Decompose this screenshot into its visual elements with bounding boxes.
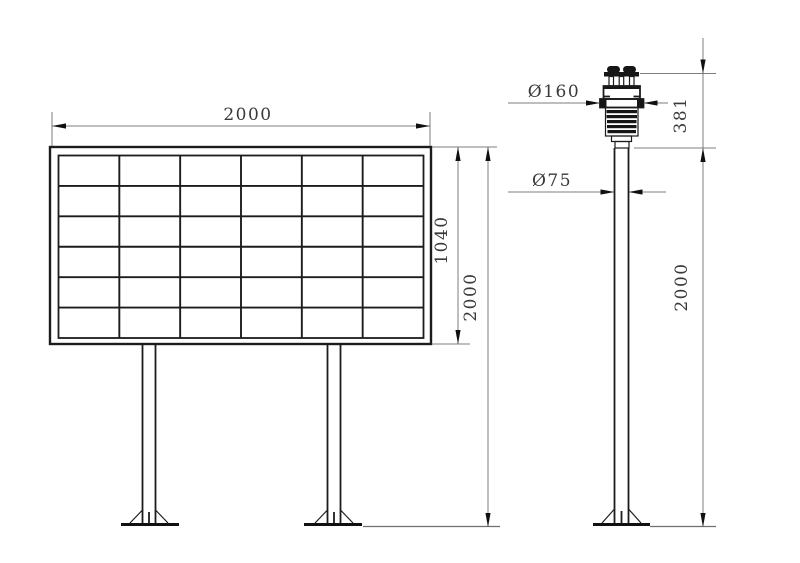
sensor-pole-side-view: Ø160 Ø75 381 2000 bbox=[508, 38, 716, 527]
pole-height-label: 2000 bbox=[672, 262, 692, 311]
sensor-cap-right bbox=[623, 66, 636, 73]
arrow-bottom bbox=[455, 330, 460, 344]
left-gusset-right bbox=[156, 510, 169, 523]
technical-drawing: 2000 1040 2000 bbox=[0, 0, 800, 563]
drawing-sheet: 2000 1040 2000 bbox=[0, 0, 800, 563]
panel-grid-lines bbox=[59, 156, 424, 339]
arrow-top bbox=[455, 147, 460, 161]
pole-gusset-left bbox=[602, 509, 615, 523]
sensor-louver-stack bbox=[606, 108, 639, 137]
pole-diameter-label: Ø75 bbox=[532, 171, 572, 191]
arrow-down-to-ground bbox=[700, 513, 705, 527]
sensor-post bbox=[609, 77, 614, 87]
arrow-left bbox=[629, 189, 643, 194]
mounting-pole bbox=[615, 148, 629, 523]
sensor-diameter-label: Ø160 bbox=[528, 82, 580, 102]
signboard-overall-height-label: 2000 bbox=[461, 272, 481, 321]
signboard-left-leg bbox=[121, 344, 179, 525]
sensor-neck bbox=[615, 142, 629, 149]
panel-height-label: 1040 bbox=[432, 215, 452, 264]
dim-signboard-width: 2000 bbox=[52, 105, 430, 146]
sensor-mid-band bbox=[600, 99, 644, 108]
pole-gusset-right bbox=[629, 509, 642, 523]
arrow-right bbox=[416, 123, 430, 128]
right-gusset-right bbox=[341, 510, 354, 523]
sensor-cap-left bbox=[607, 66, 620, 73]
sensor-neck-step bbox=[612, 136, 632, 142]
signboard-width-label: 2000 bbox=[223, 105, 272, 125]
pole-base bbox=[593, 509, 650, 525]
sensor-height-label: 381 bbox=[671, 97, 691, 134]
arrow-left bbox=[644, 100, 658, 105]
sensor-top-plate bbox=[604, 72, 639, 77]
dim-sensor-and-pole-height: 381 2000 bbox=[634, 38, 716, 527]
dim-signboard-overall-height: 2000 bbox=[461, 147, 491, 527]
sensor-post bbox=[630, 77, 635, 87]
arrow-top bbox=[485, 147, 490, 161]
arrow-down-to-sensor-top bbox=[700, 60, 705, 74]
arrow-right bbox=[601, 189, 615, 194]
arrow-right bbox=[586, 100, 600, 105]
sensor-post bbox=[619, 77, 624, 87]
arrow-left bbox=[52, 123, 66, 128]
signboard-front-view: 2000 1040 2000 bbox=[50, 105, 500, 527]
arrow-bottom bbox=[485, 513, 490, 527]
signboard-right-leg bbox=[304, 344, 362, 525]
dim-pole-diameter: Ø75 bbox=[508, 171, 666, 195]
left-gusset-left bbox=[130, 510, 143, 523]
right-gusset-left bbox=[315, 510, 328, 523]
weather-sensor-head bbox=[600, 66, 644, 148]
arrow-up-to-pole-top bbox=[700, 148, 705, 162]
